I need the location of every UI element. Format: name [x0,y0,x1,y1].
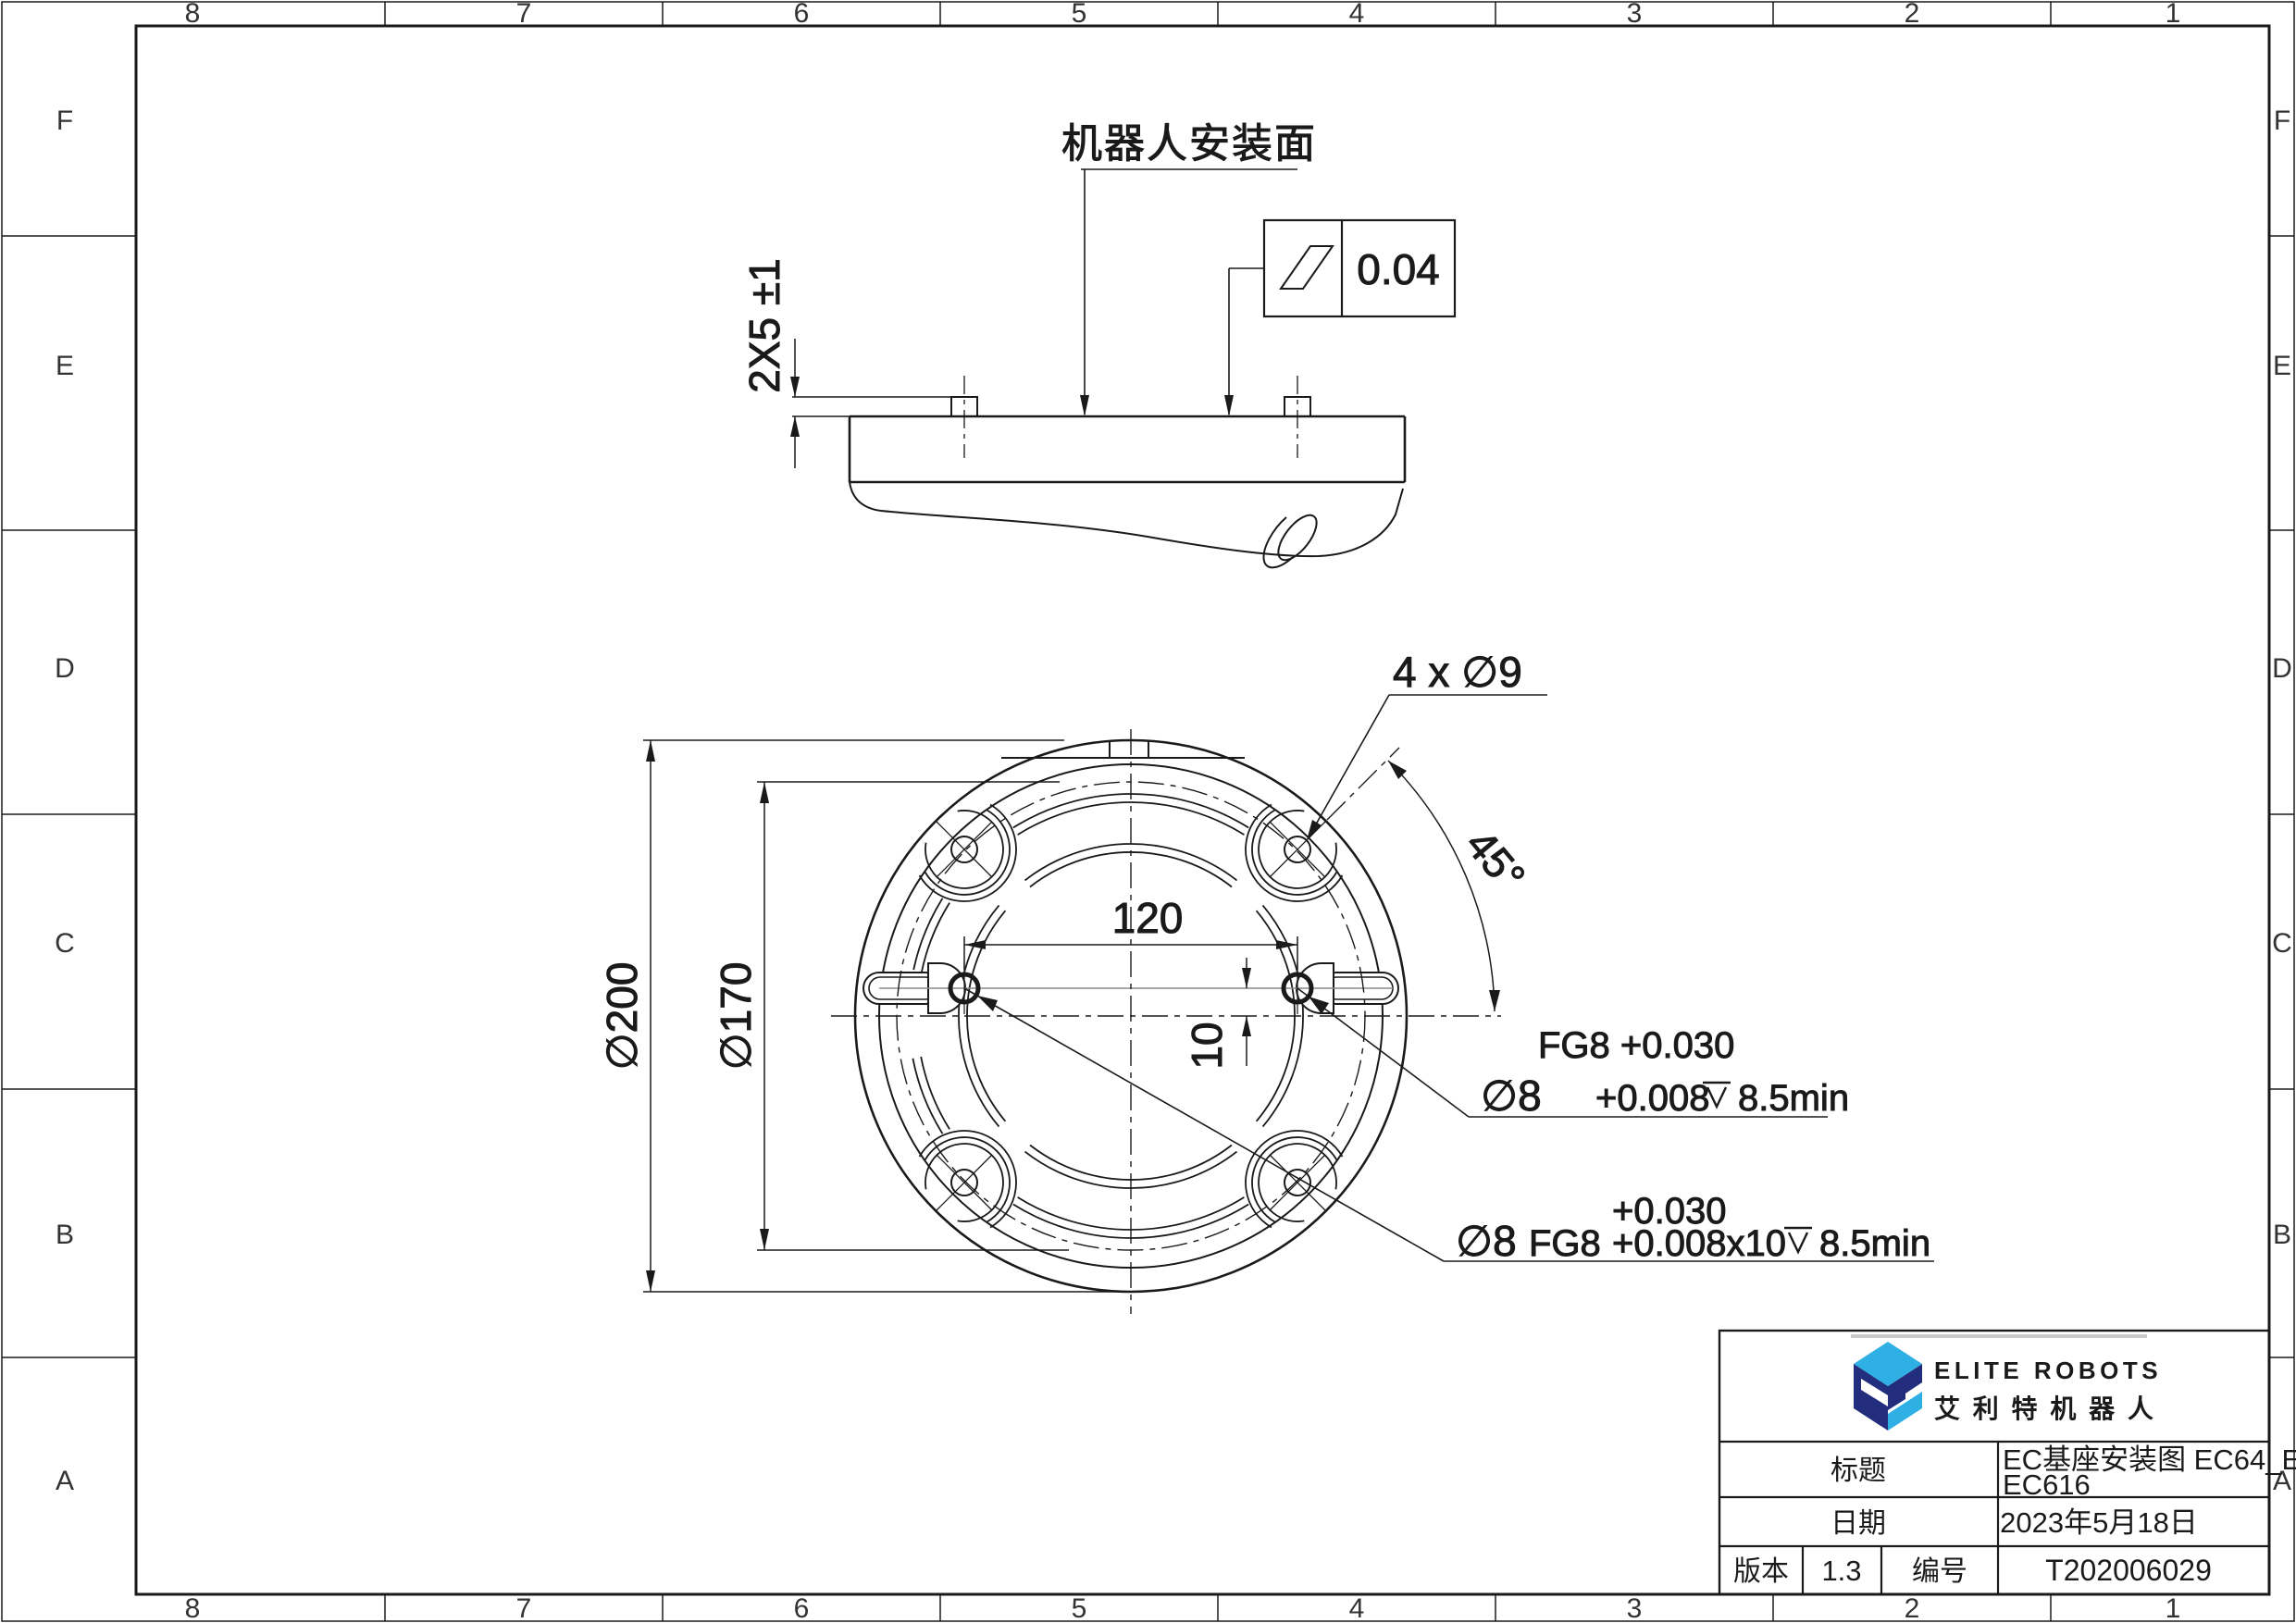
dim-10 [1242,958,1251,1066]
cable-hole [1264,509,1324,567]
grid-row-label: D [55,653,75,684]
dim-45 [1388,761,1500,1011]
grid-col-label: 2 [1905,1593,1920,1623]
callout-upper-tol: +0.008 [1595,1078,1709,1119]
callout-4x9-text: 4 x ∅9 [1393,648,1522,696]
callout-4x9 [1307,695,1547,840]
callout-upper-line1: FG8 +0.030 [1538,1025,1734,1066]
grid-row-label: B [2273,1220,2291,1250]
callout-dowel-lower [964,988,1934,1261]
version-label: 版本 [1733,1556,1789,1587]
grid-row-label: E [2273,351,2291,381]
grid-row-label: F [2274,105,2290,136]
date-value: 2023年5月18日 [2000,1506,2198,1539]
grid-row-label: C [2272,928,2292,959]
dim-120-text: 120 [1112,894,1184,942]
bottom-band-ticks [385,1594,2051,1621]
grid-row-label: A [56,1466,74,1496]
grid-row-label: D [2272,653,2292,684]
dim-10-text: 10 [1183,1022,1231,1069]
grid-col-label: 3 [1627,0,1643,29]
callout-lower-depth: 8.5min [1819,1223,1930,1264]
elite-robots-logo: ELITE ROBOTS 艾 利 特 机 器 人 [1854,1342,2162,1431]
grid-row-label: F [56,105,73,136]
logo-text: ELITE ROBOTS [1934,1357,2162,1384]
grid-row-label: B [56,1220,74,1250]
depth-icon [1784,1228,1812,1252]
plan-view: ∅200 ∅170 120 10 [598,648,1934,1314]
version-value: 1.3 [1821,1555,1861,1587]
dim-od200-text: ∅200 [598,962,646,1071]
title-block-text: 标题 EC基座安装图 EC64_EC612_ EC616 日期 2023年5月1… [1733,1443,2296,1587]
grid-col-label: 5 [1072,1593,1087,1623]
grid-col-label: 6 [794,0,810,29]
dim-45-text: 45° [1457,820,1535,900]
grid-col-label: 3 [1627,1593,1643,1623]
drawing-sheet: 8 7 6 5 4 3 2 1 8 7 6 5 4 3 2 1 F E D C … [0,0,2296,1623]
grid-row-label: C [55,928,75,959]
dim-bc170-text: ∅170 [712,962,760,1071]
grid-col-label: 8 [185,1593,201,1623]
left-band-ticks [2,236,136,1357]
callout-upper-dia: ∅8 [1481,1072,1542,1120]
top-band-ticks [385,2,2051,26]
grid-col-label: 5 [1072,0,1087,29]
grid-col-label: 4 [1349,1593,1365,1623]
callout-lower-tol: +0.008x10 [1612,1223,1786,1264]
title-label: 标题 [1831,1456,1886,1486]
logo-text-cn: 艾 利 特 机 器 人 [1934,1394,2156,1423]
grid-col-label: 7 [516,1593,532,1623]
grid-col-label: 1 [2166,1593,2181,1623]
grid-row-label: E [56,351,74,381]
side-view: 2X5 ±1 机器人安装面 0.04 [740,121,1455,567]
grid-col-label: 4 [1349,0,1365,29]
number-value: T202006029 [2045,1554,2212,1587]
flatness-value: 0.04 [1357,245,1440,293]
drawing-canvas: 8 7 6 5 4 3 2 1 8 7 6 5 4 3 2 1 F E D C … [0,0,2296,1623]
grid-col-label: 6 [794,1593,810,1623]
grid-col-label: 2 [1905,0,1920,29]
grid-col-label: 7 [516,0,532,29]
dowel-pin [951,397,1310,416]
pin-height-dim-text: 2X5 ±1 [740,258,788,392]
mounting-surface-label: 机器人安装面 [1061,121,1317,167]
title-value-line2: EC616 [2003,1468,2091,1501]
pin-height-dim [790,339,951,468]
callout-upper-depth: 8.5min [1738,1078,1849,1119]
date-label: 日期 [1831,1508,1886,1539]
flatness-icon [1281,246,1333,289]
grid-col-label: 1 [2166,0,2181,29]
right-band-ticks [2269,236,2294,1357]
grid-col-label: 8 [185,0,201,29]
callout-lower-dia: ∅8 [1456,1217,1517,1265]
callout-lower-fit: FG8 [1529,1223,1601,1264]
number-label: 编号 [1912,1556,1967,1587]
logo-cube-icon [1854,1342,1922,1431]
